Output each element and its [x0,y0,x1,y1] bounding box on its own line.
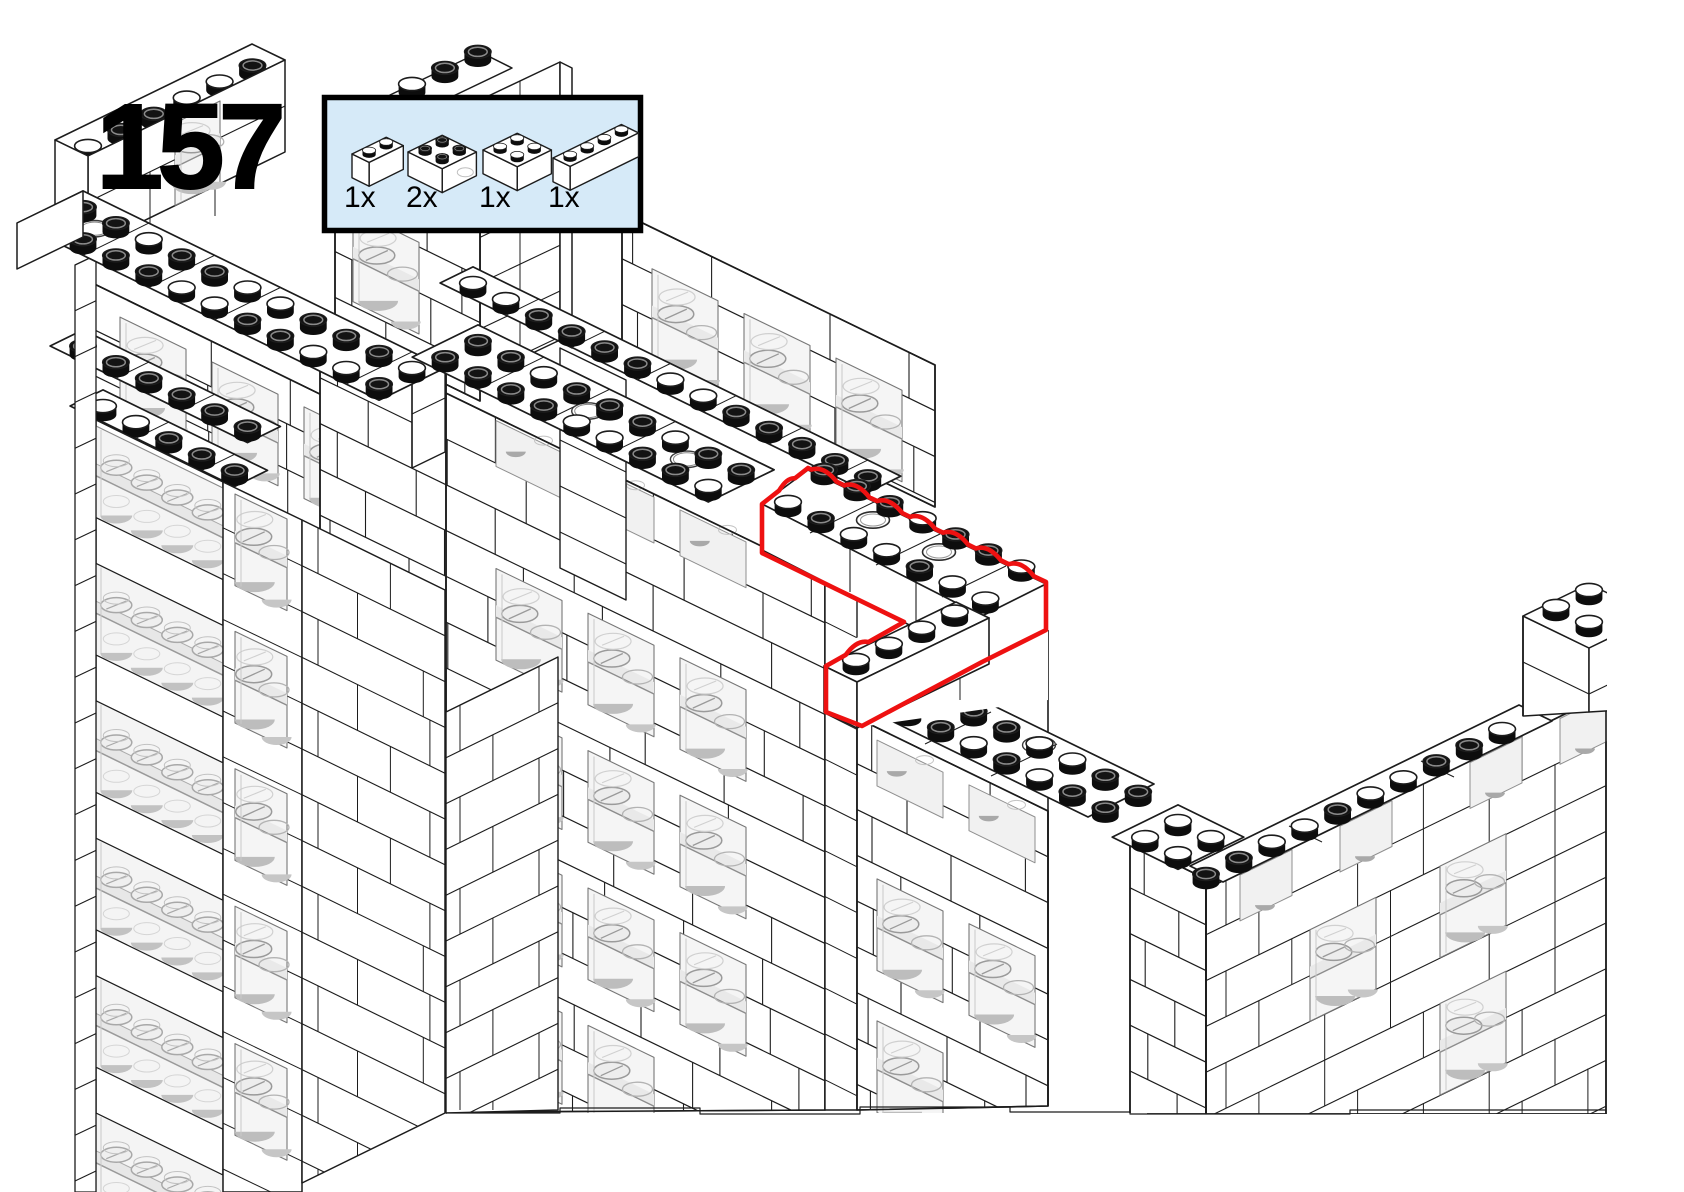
svg-text:1x: 1x [548,181,580,214]
svg-text:2x: 2x [406,181,438,214]
svg-text:157: 157 [96,78,281,214]
svg-text:1x: 1x [344,181,376,214]
svg-text:1x: 1x [479,181,511,214]
